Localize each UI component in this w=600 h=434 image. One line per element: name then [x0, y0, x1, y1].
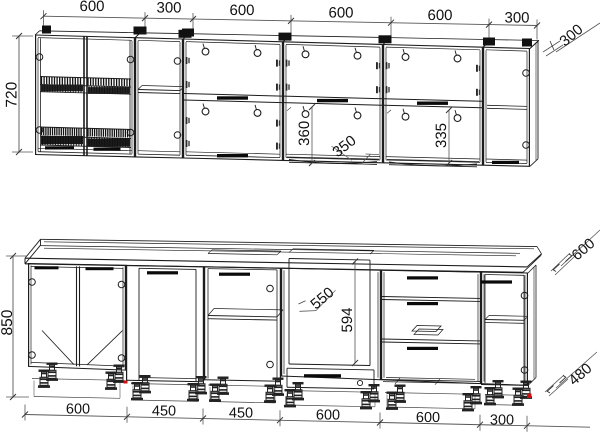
svg-text:850: 850: [0, 309, 16, 335]
svg-text:600: 600: [66, 402, 90, 418]
svg-text:300: 300: [504, 10, 529, 27]
svg-text:360: 360: [296, 121, 313, 146]
svg-text:720: 720: [4, 81, 21, 107]
svg-text:335: 335: [433, 123, 450, 148]
svg-text:600: 600: [416, 410, 440, 426]
svg-text:600: 600: [79, 0, 104, 15]
svg-text:450: 450: [229, 406, 253, 422]
svg-text:600: 600: [427, 7, 452, 24]
svg-text:300: 300: [156, 0, 181, 17]
svg-text:600: 600: [229, 2, 254, 19]
svg-text:600: 600: [328, 5, 353, 22]
svg-text:300: 300: [490, 413, 514, 429]
svg-text:450: 450: [152, 404, 176, 420]
svg-text:600: 600: [316, 408, 340, 424]
svg-text:594: 594: [339, 307, 356, 332]
